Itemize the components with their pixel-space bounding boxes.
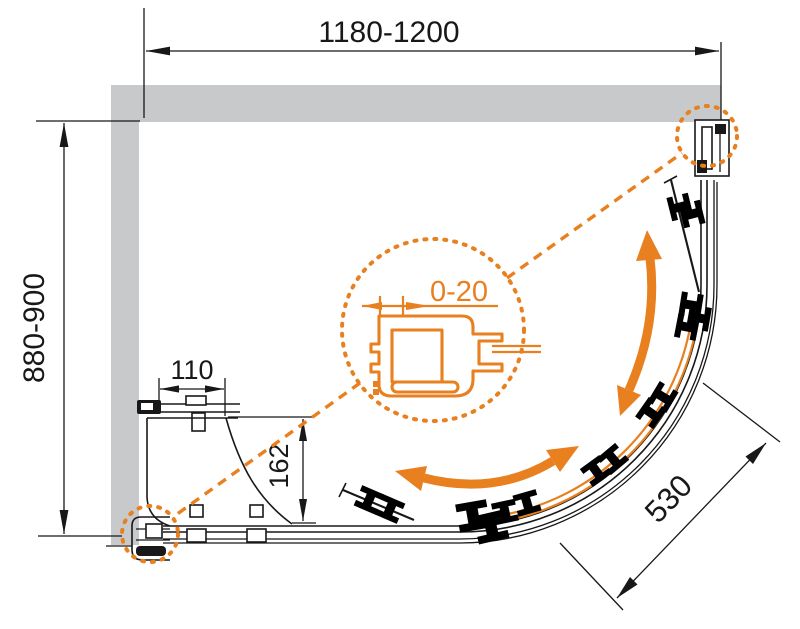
- plan-drawing: 1180-1200 880-900: [0, 0, 800, 629]
- profile-seal-bar: [392, 382, 458, 392]
- overall-depth-label: 880-900: [18, 273, 51, 383]
- glass-left-edge: [147, 418, 170, 526]
- track-clamp: [187, 505, 206, 542]
- dimension-profile-adjustment: 0-20: [362, 276, 498, 316]
- track-line: [163, 180, 701, 526]
- profile-inner-chamber: [392, 330, 442, 382]
- dimension-line: [617, 443, 766, 598]
- profile-slot: [146, 524, 162, 538]
- overall-width-label: 1180-1200: [318, 16, 459, 49]
- arrowhead-bottom: [60, 510, 69, 534]
- arrowhead-top: [60, 123, 69, 147]
- wall-profile-top-right: [695, 120, 729, 176]
- arrowhead-right: [205, 385, 224, 392]
- glass-clamp-stem: [192, 413, 205, 431]
- arrowhead-left: [160, 385, 179, 392]
- side-panel-return-label: 162: [264, 443, 294, 488]
- wall-left: [111, 85, 139, 545]
- side-panel-width-label: 110: [170, 355, 213, 385]
- profile-screw: [373, 389, 379, 395]
- profile-detail: [136, 546, 166, 556]
- extension-line: [703, 383, 780, 442]
- profile-screw: [373, 381, 379, 387]
- track-clamp: [247, 505, 266, 542]
- bracket-end-slot: [141, 403, 153, 410]
- track-line: [163, 182, 717, 543]
- dimension-door-radius: 530: [560, 383, 780, 610]
- arrowhead-left: [362, 302, 382, 310]
- curved-track: [163, 180, 717, 543]
- arrowhead-right: [695, 47, 719, 56]
- shower-dimension-diagram: 1180-1200 880-900: [0, 0, 800, 629]
- wall-top: [111, 85, 721, 122]
- profile-cross-section: 0-20: [362, 276, 541, 396]
- arrowhead-left: [146, 47, 170, 56]
- slide-arrowhead-left: [395, 466, 427, 491]
- dimension-side-panel-width: 110: [159, 355, 225, 416]
- slide-arrowhead-up: [636, 230, 662, 261]
- door-radius-label: 530: [638, 468, 699, 530]
- extension-line: [560, 543, 623, 610]
- slide-direction-arrows: [395, 230, 662, 491]
- slide-arrow-horizontal: [424, 461, 553, 484]
- glass-clamp: [186, 396, 206, 405]
- slide-arrow-vertical: [629, 258, 652, 390]
- arrowhead-bottom: [299, 499, 307, 521]
- profile-adjustment-label: 0-20: [430, 276, 488, 308]
- arrowhead-right: [406, 302, 430, 310]
